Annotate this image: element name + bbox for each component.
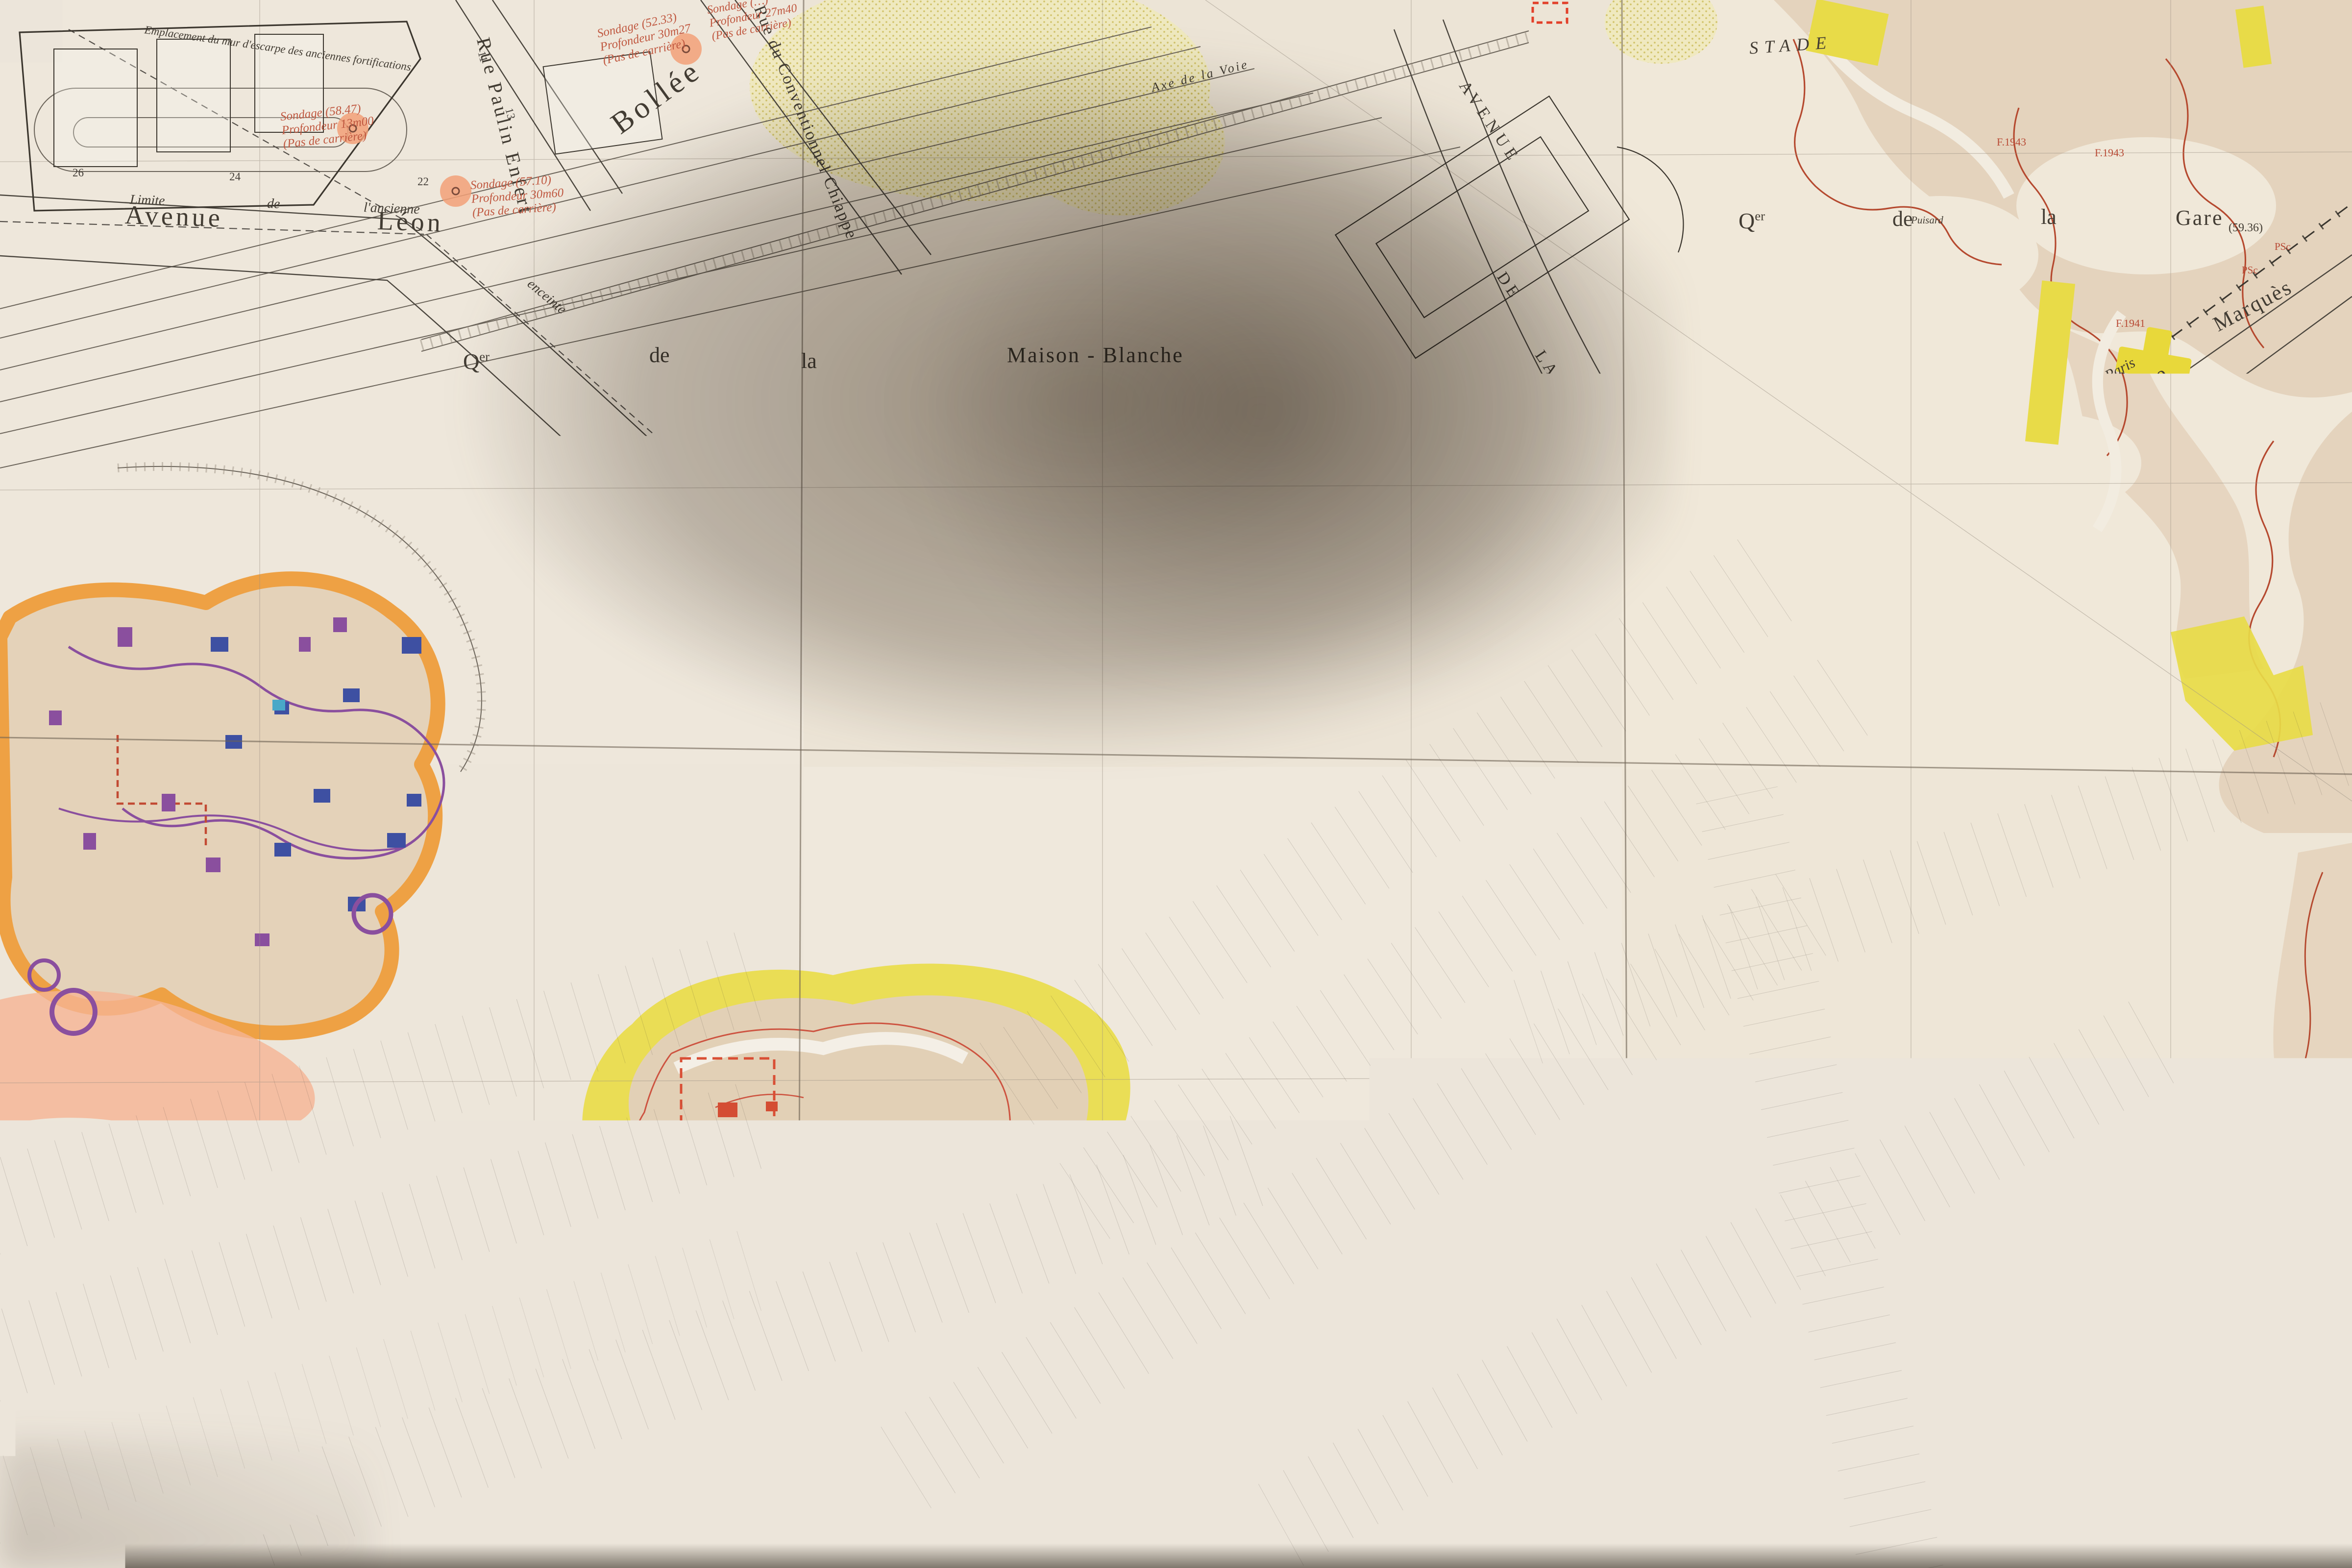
house-number: 24 (229, 171, 241, 183)
limit-label-ancienne: l'ancienne (363, 200, 420, 217)
marker-ps-echelons: PS à échelons (71, 633, 121, 660)
note-puisard-left-b: Puisard (279, 746, 313, 758)
marker-psc-chalets-b: PSc (751, 1267, 768, 1279)
district-label-qer-maison-blanche: Qer (463, 349, 490, 374)
marker-psc-gare-b: PSc (2242, 265, 2258, 276)
note-puisard-gare: Puisard (1911, 215, 1943, 226)
marker-apc-chalets-b: APc (855, 1157, 875, 1170)
site-label-transports: TRANSPORTS (609, 613, 777, 636)
limit-label-de: de (267, 196, 280, 212)
note-f1941: F.1941 (2116, 318, 2145, 330)
note-f1943-b: F.1943 (2095, 147, 2124, 159)
site-label-des: DES (509, 616, 559, 638)
limit-de-chalets: de (728, 1021, 742, 1037)
note-puisard-left-a: Puisard (267, 572, 301, 585)
site-label-parisiens: PARISIENS (788, 612, 925, 634)
house-number: 26 (73, 167, 84, 179)
quarry-zone-right-edge (2168, 843, 2352, 1568)
sand-stipple-zone (750, 0, 1717, 216)
marker-ap-left-b: AP (314, 811, 327, 823)
note-trou-echelons: Trou de … à échelons entre les 2 étages (122, 662, 185, 695)
scanned-quarry-map: Emplacement du mur d'escarpe des ancienn… (0, 0, 2352, 1568)
district-label-de-gare: de (1892, 207, 1913, 231)
marker-apc-ne: APc (2278, 403, 2297, 416)
house-number: 22 (417, 175, 429, 188)
marker-apc-chalets-a: APc (886, 1057, 906, 1070)
note-f1911: F.1911 (2132, 1144, 2161, 1156)
district-label-du: DU (893, 1305, 976, 1357)
benchmark-5985: (59.85) + (641, 1001, 679, 1032)
forage-note-ratp: Forage (59.84) Profondeur 45m80 Calc. gr… (495, 524, 611, 584)
benchmark-5912: (59.12) + (1712, 527, 1748, 557)
sheet-margin-number: 2400 (4, 1539, 29, 1553)
site-label-ateliers: ( ATELIERS ) (599, 740, 730, 759)
district-label-de: de (649, 343, 670, 367)
sondage-note-5710: Sondage (57.10) Profondeur 30m60 (Pas de… (470, 172, 565, 220)
district-label-gare: Gare (2176, 206, 2224, 230)
district-label-la: la (801, 349, 817, 373)
sondage-note-ratp: Sondage Profondeur 12m00 (622, 695, 712, 726)
benchmark-5936: (59.36) (2229, 221, 2263, 235)
benchmark-5977: (59.77) + (1956, 996, 1996, 1028)
note-f1943-a: F.1943 (1997, 136, 2026, 148)
note-et: et (58, 791, 66, 804)
benchmark-6107: (61.07) + (856, 1506, 893, 1536)
benchmark-6036: (60.36) + (2122, 1424, 2159, 1454)
district-label-maison-blanche: Maison - Blanche (1007, 343, 1184, 367)
marker-psc-gare-a: PSc (2275, 241, 2291, 253)
district-label-la-gare: la (2041, 205, 2057, 229)
map-linework (0, 0, 2352, 1568)
marker-ap-left-a: AP (221, 762, 235, 774)
note-sondage-left: Sondage (128, 711, 169, 725)
marker-psc-chalets-a: PSc (628, 1077, 646, 1090)
district-label-qer-gare: Qer (1739, 208, 1765, 234)
limit-label-limite: Limite (129, 192, 165, 209)
marker-psc-left: PSc (392, 659, 409, 671)
